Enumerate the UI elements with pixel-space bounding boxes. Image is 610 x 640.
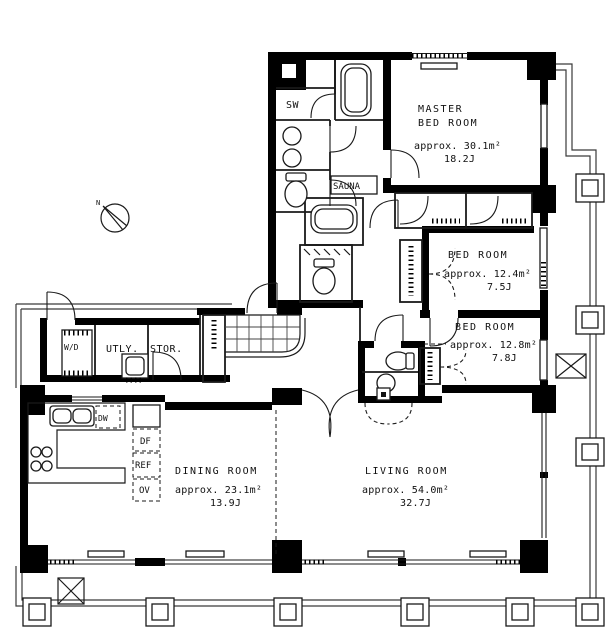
master-bedroom-area: approx. 30.1m² [414,141,501,152]
closet-doors [400,196,498,224]
bedroom1-area: approx. 12.4m² [444,269,531,280]
compass-icon: N [96,199,129,232]
living-double-door [302,390,358,437]
dining-room-label: DINING ROOM [175,466,258,477]
bedroom2-tatami: 7.8J [492,353,517,364]
laundry-sink-icon [122,354,148,380]
toilet-icon [386,352,414,370]
control-box-icon [377,388,390,400]
dishwasher-label: DW [98,414,108,423]
bedroom2-label: BED ROOM [455,322,515,333]
shower-room-label: SW [286,100,300,111]
floor-plan-drawing: MASTER BED ROOM approx. 30.1m² 18.2J BED… [0,0,610,640]
curtain-box [421,63,457,69]
dining-room-area: approx. 23.1m² [175,485,262,496]
living-room-tatami: 32.7J [400,498,431,509]
bedroom1-tatami: 7.5J [487,282,512,293]
toilet-icon [285,173,307,207]
refrigerator-label: REF [135,461,151,471]
bathtub-icon [341,64,371,116]
washer-dryer-label: W/D [64,343,79,352]
powder-room-door [375,315,403,341]
compass-north-label: N [96,199,100,207]
shower-room-door [311,94,335,118]
oven-label: OV [139,486,150,496]
entrance-genkan [225,315,305,357]
bedroom2-closet-door [440,350,466,384]
service-door [47,292,75,320]
bedroom1-label: BED ROOM [448,250,508,261]
bedroom1-window [540,228,547,288]
living-room-area: approx. 54.0m² [362,485,449,496]
bedroom2-window [540,340,547,380]
utility-label: UTLY. [106,344,139,355]
washroom-door [330,126,356,152]
sauna-label: SAUNA [333,182,361,192]
dining-room-tatami: 13.9J [210,498,241,509]
cooktop-icon [31,447,52,471]
storage-label: STOR. [150,344,183,355]
freezer-label: DF [140,437,151,447]
living-folding-door [365,403,412,424]
hall-door [370,200,398,228]
toilet-icon [304,249,350,294]
floor-plan-page: MASTER BED ROOM approx. 30.1m² 18.2J BED… [0,0,610,640]
living-room-label: LIVING ROOM [365,466,448,477]
master-window [541,104,547,148]
hall-closet [400,240,422,302]
master-bedroom-label2: BED ROOM [418,118,478,129]
sink-icon [283,127,301,167]
master-bedroom-door [391,150,419,178]
master-bedroom-label: MASTER [418,104,463,115]
bathtub-icon [311,205,357,233]
washer-dryer-icon [62,330,92,376]
bedroom2-area: approx. 12.8m² [450,340,537,351]
master-bedroom-tatami: 18.2J [444,154,475,165]
